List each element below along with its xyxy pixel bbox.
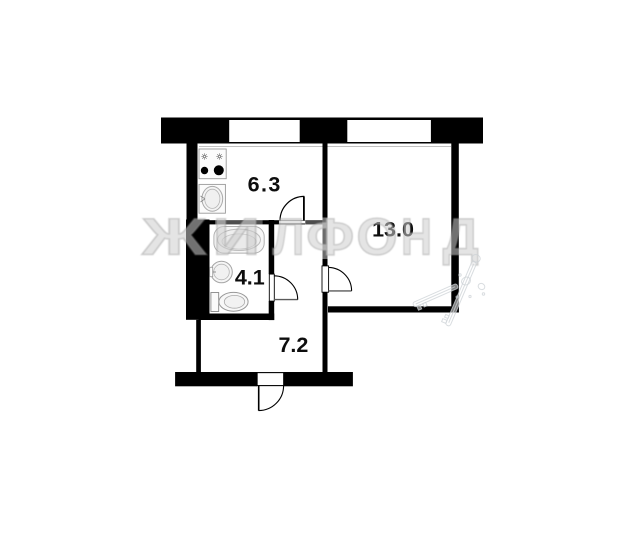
svg-text:Л: Л: [273, 209, 305, 267]
svg-text:Н: Н: [401, 209, 432, 267]
svg-text:Ж: Ж: [141, 209, 208, 267]
svg-text:О: О: [356, 209, 397, 267]
svg-text:4.1: 4.1: [235, 266, 265, 290]
svg-text:7.2: 7.2: [278, 333, 308, 357]
svg-text:И: И: [213, 209, 261, 267]
svg-text:Д: Д: [443, 209, 479, 267]
svg-text:Ф: Ф: [306, 209, 354, 267]
svg-text:6.3: 6.3: [248, 172, 282, 196]
